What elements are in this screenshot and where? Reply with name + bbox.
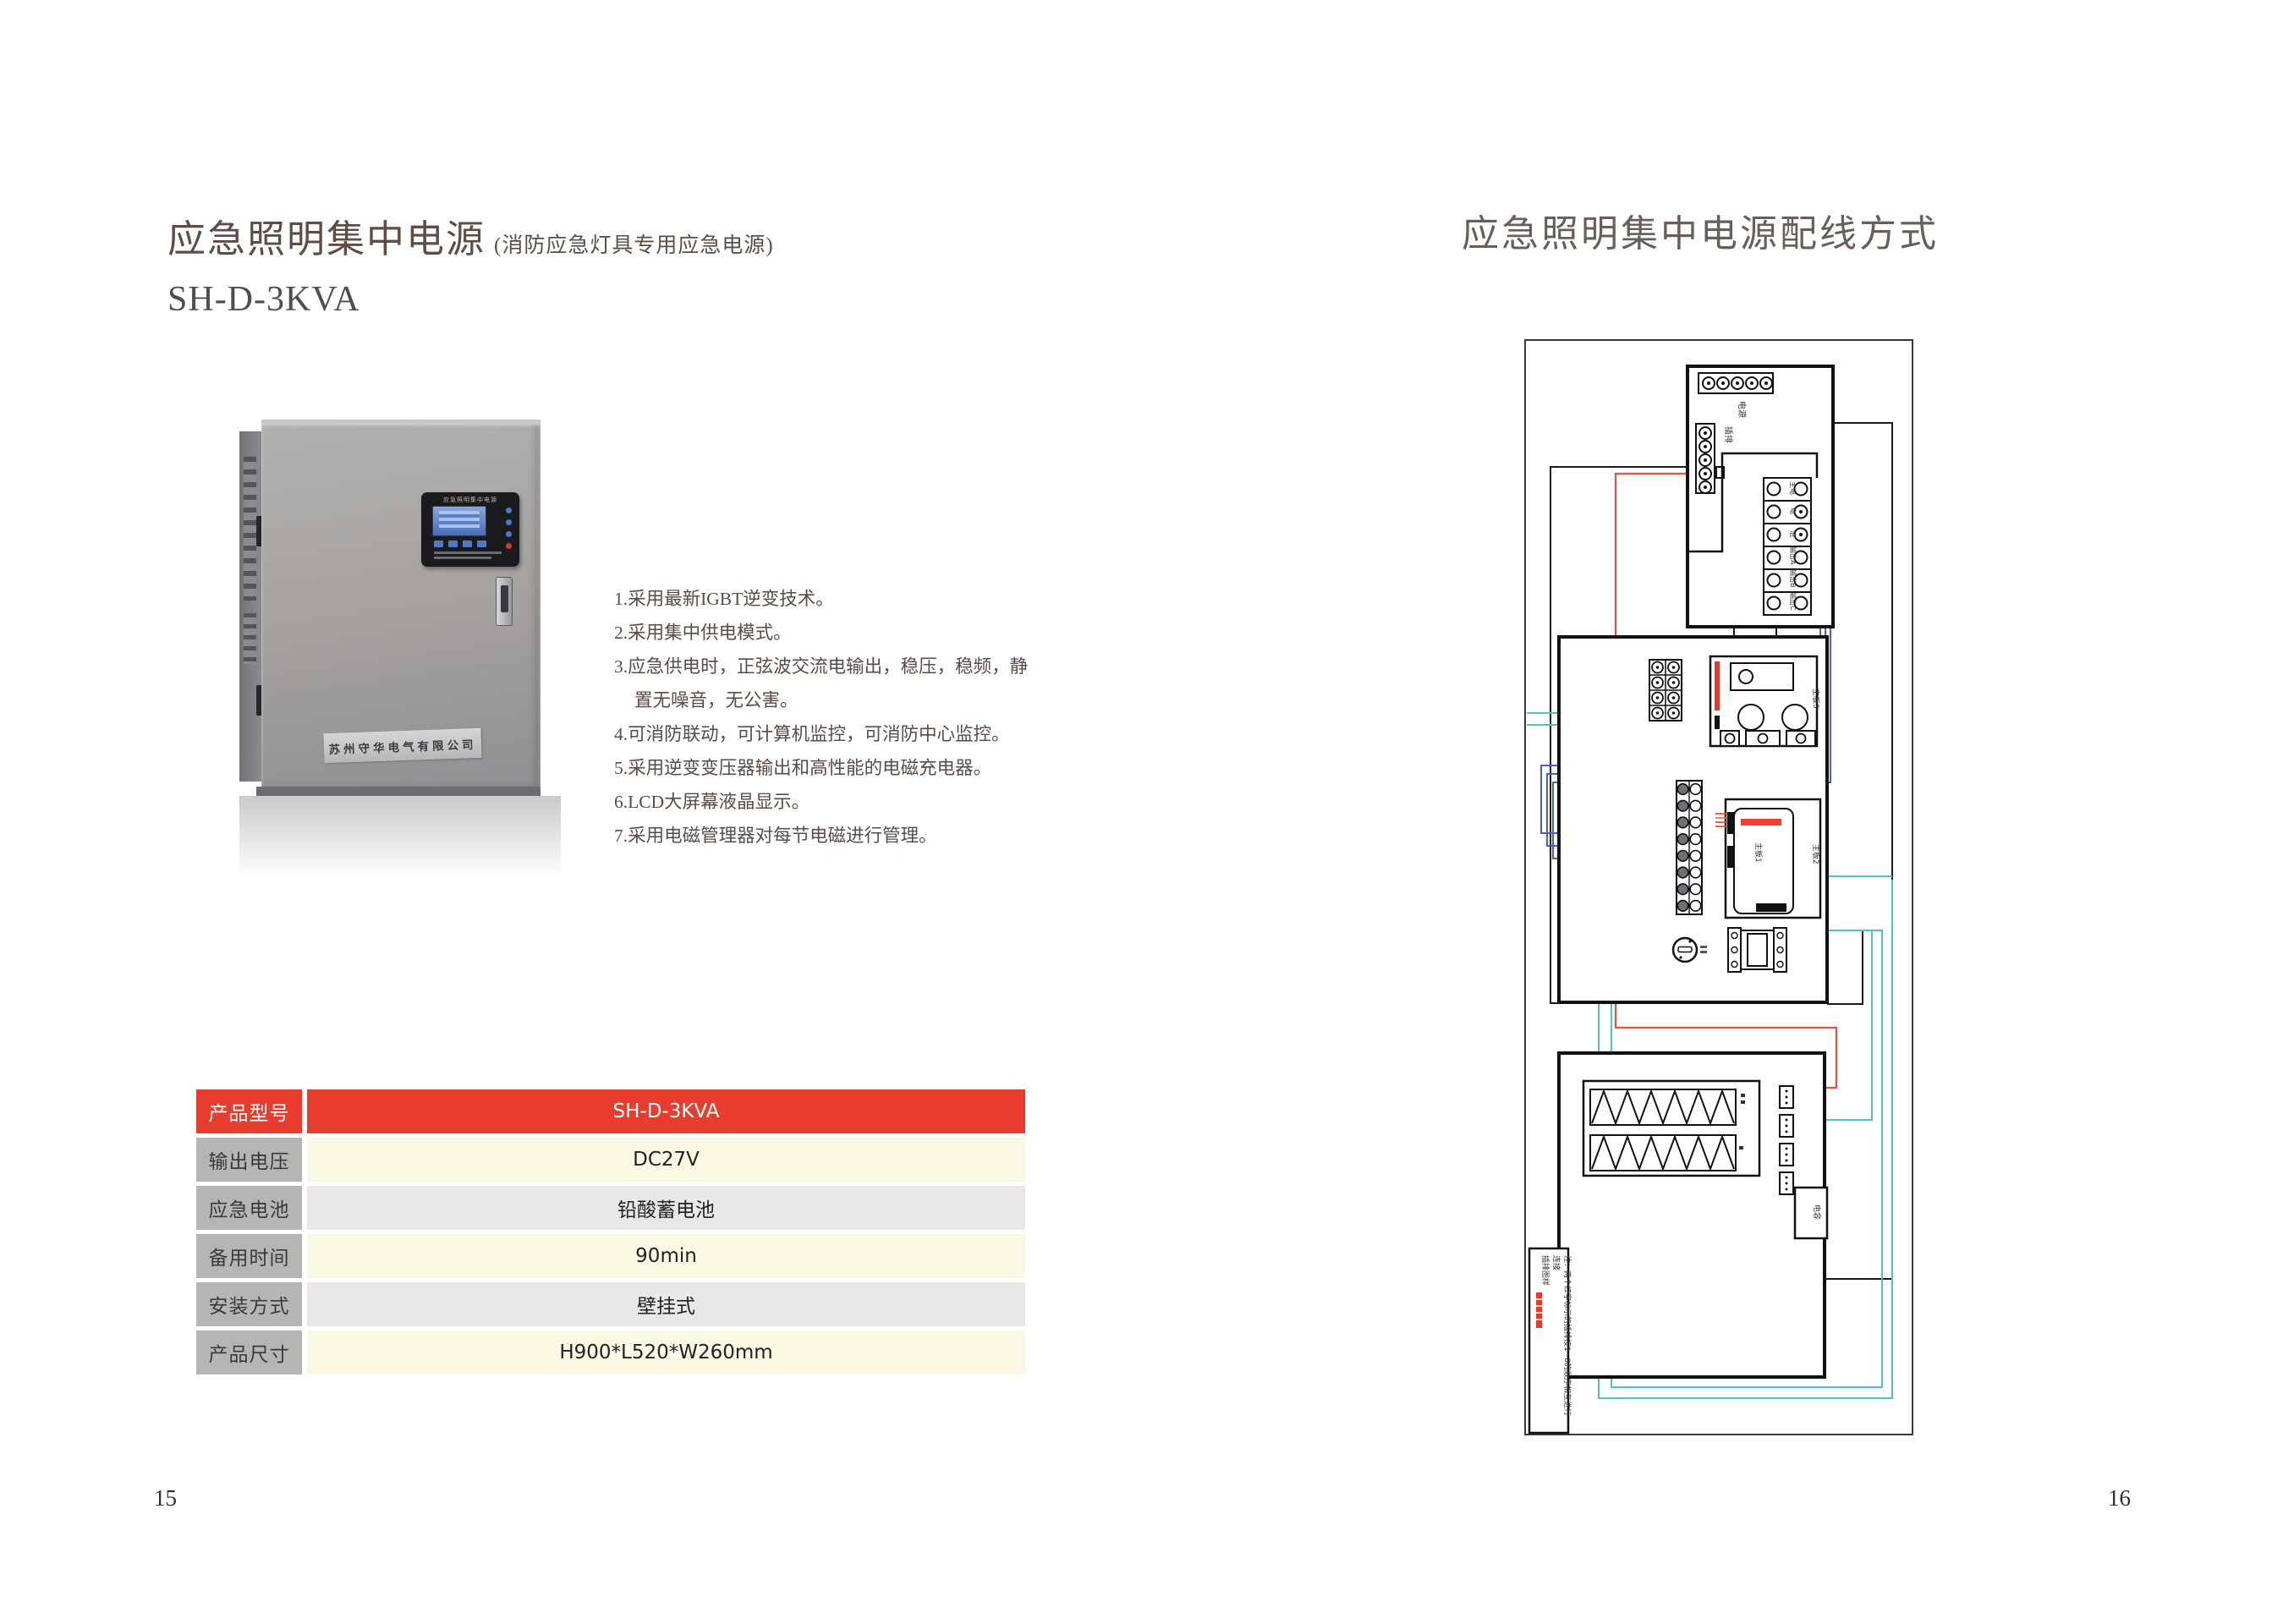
wiring-diagram: 电源 插排 — [1523, 338, 1917, 1438]
table-header-label: 产品型号 — [196, 1089, 302, 1133]
input-terminal-block — [1649, 660, 1682, 721]
note-line-3: 插排图样 — [1540, 1255, 1550, 1286]
led-blue-3 — [506, 531, 512, 537]
product-photo: 应急照明集中电源 苏州守华电气有限公司 — [239, 416, 561, 839]
cabinet-side — [239, 431, 261, 782]
feature-item: 7.采用电磁管理器对每节电磁进行管理。 — [614, 819, 1045, 853]
indicator-leds — [506, 507, 512, 549]
board1-label: 主板1 — [1753, 842, 1764, 863]
feature-item: 3.应急供电时，正弦波交流电输出，稳压，稳频，静置无噪音，无公害。 — [614, 650, 1045, 717]
table-row: 输出电压 DC27V — [196, 1138, 1025, 1182]
led-blue-2 — [506, 519, 512, 525]
vent-slots — [244, 457, 256, 601]
table-row: 产品尺寸 H900*L520*W260mm — [196, 1330, 1025, 1374]
table-row: 安装方式 壁挂式 — [196, 1282, 1025, 1326]
led-red — [506, 543, 512, 549]
lcd-screen — [432, 506, 486, 536]
table-row: 应急电池 铅酸蓄电池 — [196, 1186, 1025, 1230]
page-title-suffix: (消防应急灯具专用应急电源) — [494, 228, 774, 259]
feature-item: 5.采用逆变变压器输出和高性能的电磁充电器。 — [614, 751, 1045, 785]
board-3: 主板3 — [1710, 656, 1821, 746]
red-plug-strip-marker-1 — [1715, 661, 1720, 710]
product-model: SH-D-3KVA — [167, 279, 360, 320]
transformer — [1728, 928, 1786, 972]
board-2: 主板1 主板2 — [1715, 799, 1821, 918]
spec-table: 产品型号 SH-D-3KVA 输出电压 DC27V 应急电池 铅酸蓄电池 备用时… — [196, 1089, 1025, 1379]
panel-title: 应急照明集中电源 — [421, 497, 519, 503]
page-title: 应急照明集中电源 — [167, 208, 486, 263]
controller-box: 电源 插排 — [1688, 366, 1833, 627]
catalog-spread: 应急照明集中电源 (消防应急灯具专用应急电源) SH-D-3KVA 应急照明集中… — [0, 0, 2283, 1624]
plug-strip-legend — [1536, 1292, 1542, 1328]
table-header-value: SH-D-3KVA — [307, 1089, 1025, 1133]
capacitor-label: 电容 — [1812, 1204, 1822, 1220]
board2-label: 主板2 — [1811, 844, 1821, 864]
feature-list: 1.采用最新IGBT逆变技术。 2.采用集中供电模式。 3.应急供电时，正弦波交… — [614, 582, 1045, 853]
cabinet-reflection — [239, 796, 561, 902]
feature-item: 1.采用最新IGBT逆变技术。 — [614, 582, 1045, 616]
output-terminal-block: 主电 电 池 输出A 输出B 输出C — [1764, 478, 1811, 615]
feature-item: 2.采用集中供电模式。 — [614, 616, 1045, 650]
nameplate: 苏州守华电气有限公司 — [323, 728, 481, 763]
control-panel: 应急照明集中电源 — [421, 492, 519, 567]
terminal-label: 池 — [1789, 530, 1797, 537]
feature-item: 6.LCD大屏幕液晶显示。 — [614, 785, 1045, 819]
table-row-header: 产品型号 SH-D-3KVA — [196, 1089, 1025, 1133]
note-line-2: 连接 — [1551, 1255, 1561, 1270]
power-strip-label: 电源 — [1737, 401, 1748, 418]
feature-item: 4.可消防联动，可计算机监控，可消防中心监控。 — [614, 717, 1045, 751]
terminal-label: 电 — [1789, 507, 1797, 514]
vertical-strip-label: 插排 — [1723, 426, 1734, 443]
cabinet-bottom-edge — [256, 787, 541, 796]
vent-slots-lower — [244, 613, 256, 664]
long-terminal-strip — [1677, 781, 1702, 914]
bottom-box: 电容 — [1559, 1053, 1827, 1377]
terminal-label: 输出C — [1789, 592, 1797, 611]
note-box: 注：两个红字标示的插排按1~8的顺序相互进行 连接 插排图样 — [1529, 1248, 1572, 1433]
table-row: 备用时间 90min — [196, 1234, 1025, 1278]
wiring-diagram-svg: 电源 插排 — [1523, 338, 1917, 1438]
board3-label: 主板3 — [1811, 689, 1821, 709]
red-plug-strip-marker-2 — [1741, 819, 1781, 826]
note-line-1: 注：两个红字标示的插排按1~8的顺序相互进行 — [1562, 1255, 1572, 1416]
terminal-label: 主电 — [1789, 481, 1797, 495]
led-blue-1 — [506, 507, 512, 513]
middle-box: 主板3 — [1559, 637, 1827, 1002]
page-number-right: 16 — [2108, 1485, 2131, 1512]
terminal-label: 输出A — [1789, 546, 1797, 565]
product-title-block: 应急照明集中电源 (消防应急灯具专用应急电源) — [167, 208, 774, 263]
battery-rack — [1583, 1081, 1759, 1176]
page-number-left: 15 — [154, 1485, 177, 1512]
door-handle — [496, 577, 513, 626]
capacitor-box: 电容 — [1795, 1188, 1827, 1238]
wiring-title: 应急照明集中电源配线方式 — [1438, 203, 1962, 257]
terminal-label: 输出B — [1789, 569, 1797, 588]
